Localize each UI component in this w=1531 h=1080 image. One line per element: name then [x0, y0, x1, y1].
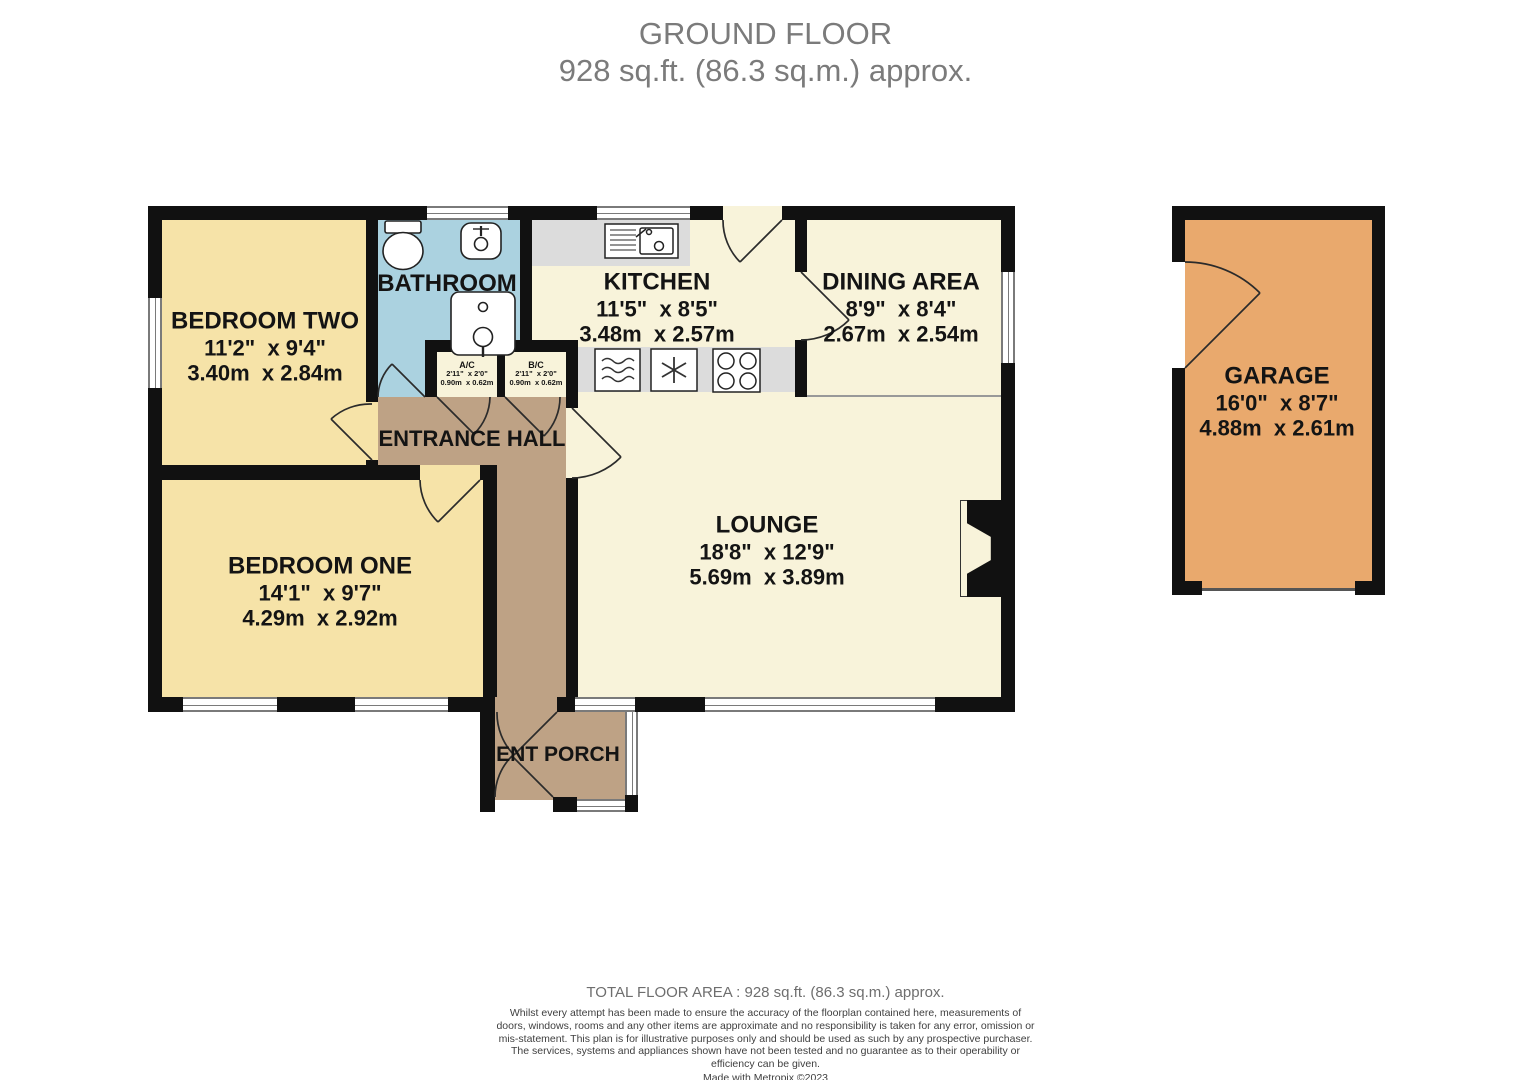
floor-title: GROUND FLOOR: [0, 16, 1531, 53]
wall: [566, 352, 578, 697]
window: [575, 697, 635, 712]
room-name: DINING AREA: [822, 269, 980, 297]
room-size-metric: 3.48m x 2.57m: [579, 322, 734, 348]
window: [597, 206, 690, 220]
window: [355, 697, 448, 712]
doorway: [1172, 262, 1185, 368]
room-size-metric: 4.29m x 2.92m: [228, 606, 412, 632]
bedroom-two-label: BEDROOM TWO 11'2" x 9'4" 3.40m x 2.84m: [171, 308, 359, 387]
kitchen-counter-bottom: [578, 347, 795, 392]
room-size-metric: 4.88m x 2.61m: [1199, 416, 1354, 442]
wall: [148, 206, 162, 712]
wall: [1372, 206, 1385, 595]
room-name: BEDROOM TWO: [171, 308, 359, 336]
room-size-metric: 2.67m x 2.54m: [822, 322, 980, 348]
wall: [425, 340, 437, 397]
room-size-imperial: 11'2" x 9'4": [171, 335, 359, 361]
floor-area-subtitle: 928 sq.ft. (86.3 sq.m.) approx.: [0, 53, 1531, 90]
room-name: LOUNGE: [689, 512, 844, 540]
window: [705, 697, 935, 712]
closet-bc-label: B/C 2'11" x 2'0" 0.90m x 0.62m: [510, 360, 563, 388]
garage-door-line: [1202, 588, 1355, 591]
room-size-imperial: 18'8" x 12'9": [689, 539, 844, 565]
hall-corridor: [497, 480, 566, 697]
room-size-metric: 5.69m x 3.89m: [689, 565, 844, 591]
room-name: KITCHEN: [579, 269, 734, 297]
ent-porch-label: ENT PORCH: [496, 743, 620, 767]
kitchen-counter-top: [532, 220, 690, 266]
room-name: ENTRANCE HALL: [379, 426, 566, 452]
wall: [795, 340, 807, 397]
page-title: GROUND FLOOR 928 sq.ft. (86.3 sq.m.) app…: [0, 16, 1531, 89]
bedroom-one-label: BEDROOM ONE 14'1" x 9'7" 4.29m x 2.92m: [228, 553, 412, 632]
lounge-label: LOUNGE 18'8" x 12'9" 5.69m x 3.89m: [689, 512, 844, 591]
closet-ac-label: A/C 2'11" x 2'0" 0.90m x 0.62m: [441, 360, 494, 388]
doorway: [420, 465, 480, 480]
room-size-imperial: 8'9" x 8'4": [822, 296, 980, 322]
room-size-imperial: 14'1" x 9'7": [228, 580, 412, 606]
room-name: ENT PORCH: [496, 743, 620, 767]
window: [183, 697, 277, 712]
wall: [483, 465, 497, 697]
wall: [148, 206, 1015, 220]
entrance-hall-label: ENTRANCE HALL: [379, 426, 566, 452]
wall: [1172, 206, 1385, 220]
disclaimer-text: Whilst every attempt has been made to en…: [496, 1007, 1036, 1071]
room-size-metric: 0.90m x 0.62m: [441, 379, 494, 388]
dining-area-label: DINING AREA 8'9" x 8'4" 2.67m x 2.54m: [822, 269, 980, 348]
dining-lounge-divider: [807, 395, 1001, 397]
room-size-metric: 0.90m x 0.62m: [510, 379, 563, 388]
wall: [795, 220, 807, 272]
wall: [553, 797, 577, 812]
room-name: BATHROOM: [377, 270, 517, 298]
credit-text: Made with Metropix ©2023: [0, 1072, 1531, 1080]
doorway: [495, 697, 557, 712]
wall: [480, 697, 495, 812]
room-size-imperial: 16'0" x 8'7": [1199, 390, 1354, 416]
bathroom-label: BATHROOM: [377, 270, 517, 298]
doorway: [723, 206, 782, 220]
window: [577, 799, 625, 812]
wall: [557, 697, 573, 712]
footer: TOTAL FLOOR AREA : 928 sq.ft. (86.3 sq.m…: [0, 984, 1531, 1080]
window: [1001, 272, 1015, 363]
room-size-imperial: 11'5" x 8'5": [579, 296, 734, 322]
wall: [480, 797, 495, 812]
wall: [497, 352, 505, 397]
wall: [425, 340, 578, 352]
doorway: [366, 402, 378, 460]
total-floor-area: TOTAL FLOOR AREA : 928 sq.ft. (86.3 sq.m…: [0, 984, 1531, 1001]
room-size-metric: 3.40m x 2.84m: [171, 361, 359, 387]
wall: [1355, 581, 1385, 595]
garage-label: GARAGE 16'0" x 8'7" 4.88m x 2.61m: [1199, 363, 1354, 442]
room-name: BEDROOM ONE: [228, 553, 412, 581]
room-name: GARAGE: [1199, 363, 1354, 391]
window: [625, 712, 638, 795]
floorplan-canvas: GROUND FLOOR 928 sq.ft. (86.3 sq.m.) app…: [0, 0, 1531, 1080]
kitchen-label: KITCHEN 11'5" x 8'5" 3.48m x 2.57m: [579, 269, 734, 348]
window: [427, 206, 508, 220]
window: [148, 298, 162, 388]
doorway: [566, 408, 578, 478]
wall: [1172, 581, 1202, 595]
wall: [520, 206, 532, 352]
